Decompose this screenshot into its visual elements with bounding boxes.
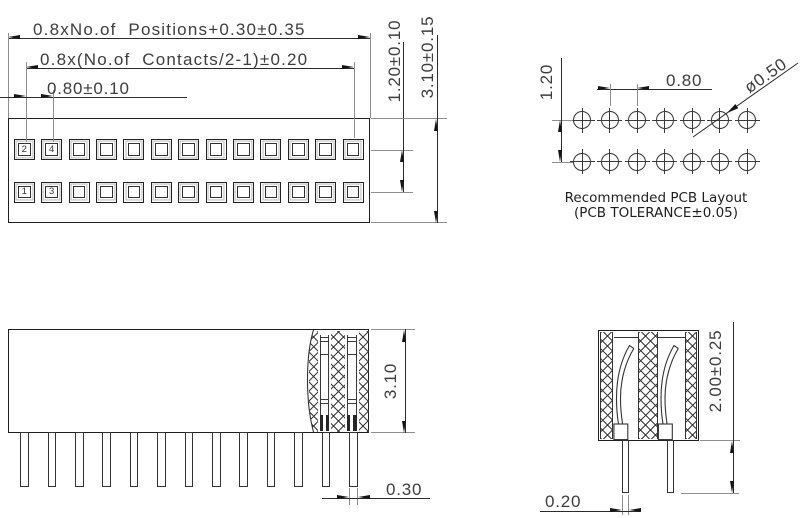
arrowhead <box>598 86 610 90</box>
arrowhead <box>730 481 734 493</box>
pcb-row-spacing-label: 1.20 <box>539 59 555 105</box>
pin <box>130 432 139 487</box>
pin <box>349 432 358 487</box>
pin <box>267 432 276 487</box>
contact-hole <box>69 139 90 160</box>
contact-hole-opening <box>347 143 360 156</box>
contact-foot <box>353 415 357 431</box>
ext-line <box>371 150 413 151</box>
arrowhead <box>337 495 349 499</box>
contact-hole: 1 <box>14 182 35 203</box>
contact-hole <box>260 182 281 203</box>
arrowhead <box>434 119 438 131</box>
contact-hole-opening <box>155 143 168 156</box>
crosshair-v-line <box>609 149 610 174</box>
contact-hole: 2 <box>14 139 35 160</box>
pcb-caption-line1: Recommended PCB Layout <box>530 190 782 206</box>
arrowhead <box>400 180 404 192</box>
pin <box>667 440 674 493</box>
ext-line <box>622 495 623 515</box>
dim-body-height-label: 3.10±0.15 <box>420 5 436 109</box>
pcb-hole <box>683 111 701 129</box>
contact-hole-opening <box>73 143 86 156</box>
contact-channel <box>318 331 332 432</box>
contact-hole <box>69 182 90 203</box>
contact-hole <box>233 182 254 203</box>
dim-row-spacing-label: 1.20±0.10 <box>387 11 403 111</box>
ext-line <box>8 33 9 118</box>
contact-hole <box>233 139 254 160</box>
ext-line <box>371 192 413 193</box>
contact-hole-opening <box>100 143 113 156</box>
arrowhead <box>558 150 562 162</box>
pcb-hole <box>601 111 619 129</box>
pcb-hole <box>738 153 756 171</box>
dim-line <box>405 329 406 433</box>
contact-hole-opening <box>292 186 305 199</box>
contact-detail-line <box>347 399 357 400</box>
contact-hole-opening <box>128 186 141 199</box>
ext-line <box>637 84 638 106</box>
contact-foot <box>347 415 351 431</box>
contact-detail-line <box>347 341 357 342</box>
pin <box>157 432 166 487</box>
pin <box>75 432 84 487</box>
contact-hole-opening <box>73 186 86 199</box>
arrowhead <box>730 441 734 453</box>
pcb-hole <box>656 111 674 129</box>
contact-hole <box>315 139 336 160</box>
ext-line <box>371 432 415 433</box>
pin <box>185 432 194 487</box>
contact-hole-opening <box>182 143 195 156</box>
crosshair-v-line <box>637 108 638 133</box>
cavity-top-line <box>658 337 685 338</box>
contact-detail-line <box>347 403 357 404</box>
contact-foot <box>326 415 330 431</box>
drawing-canvas: 2413 0.8xNo.of Positions+0.30±0.35 0.8x(… <box>0 0 800 518</box>
pcb-hole <box>738 111 756 129</box>
contact-hole-opening: 4 <box>45 143 58 156</box>
crosshair-v-line <box>719 108 720 133</box>
contact-hole <box>123 182 144 203</box>
pcb-hole <box>683 153 701 171</box>
crosshair-v-line <box>692 149 693 174</box>
pcb-hole <box>711 153 729 171</box>
section-pin-thickness-label: 0.20 <box>545 492 581 512</box>
arrowhead <box>610 508 622 512</box>
dim-contacts-span-label: 0.8x(No.of Contacts/2-1)±0.20 <box>40 50 308 70</box>
side-pin-width-label: 0.30 <box>386 480 422 500</box>
contact-detail-line <box>320 403 330 404</box>
dim-line <box>561 58 562 162</box>
contact-hole-opening <box>347 186 360 199</box>
section-wall-center <box>638 332 658 439</box>
contact-hole-opening <box>265 186 278 199</box>
contact-hole-opening <box>265 143 278 156</box>
arrowhead <box>358 35 370 39</box>
arrowhead <box>8 35 20 39</box>
top-view-body <box>8 118 370 223</box>
contact-hole-opening: 2 <box>18 143 31 156</box>
ext-line <box>26 62 27 142</box>
contact-hole-opening <box>182 186 195 199</box>
contact-detail-line <box>320 337 330 338</box>
pcb-hole <box>601 153 619 171</box>
pin <box>48 432 57 487</box>
contact-hole <box>178 182 199 203</box>
ext-line <box>552 120 573 121</box>
contact-detail-line <box>347 337 357 338</box>
crosshair-v-line <box>609 108 610 133</box>
contact-hole-opening <box>100 186 113 199</box>
dim-overall-width-label: 0.8xNo.of Positions+0.30±0.35 <box>33 20 306 40</box>
ext-line <box>370 33 371 118</box>
ext-line <box>371 329 415 330</box>
arrowhead <box>637 86 649 90</box>
contact-hole <box>96 139 117 160</box>
contact-hole <box>206 139 227 160</box>
ext-line <box>349 488 350 505</box>
leader-arrowhead <box>727 104 738 113</box>
contact-hole-opening <box>128 143 141 156</box>
contact-hole <box>178 139 199 160</box>
crosshair-v-line <box>664 149 665 174</box>
arrowhead <box>342 65 354 69</box>
ext-line <box>354 62 355 138</box>
crosshair-v-line <box>582 108 583 133</box>
pcb-hole <box>573 153 591 171</box>
dim-line <box>733 322 734 493</box>
crosshair-v-line <box>692 108 693 133</box>
contact-hole-opening: 1 <box>18 186 31 199</box>
crosshair-v-line <box>664 108 665 133</box>
contact-hole-opening <box>237 186 250 199</box>
contact-hole-opening <box>210 186 223 199</box>
pin <box>294 432 303 487</box>
contact-hole-opening: 3 <box>45 186 58 199</box>
ext-line <box>610 84 611 106</box>
pin <box>239 432 248 487</box>
pcb-hole <box>628 153 646 171</box>
side-height-label: 3.10 <box>383 359 399 403</box>
pin <box>622 440 629 493</box>
contact-hole-opening <box>210 143 223 156</box>
pcb-caption-line2: (PCB TOLERANCE±0.05) <box>530 205 782 221</box>
arrowhead <box>26 65 38 69</box>
contact-foot <box>320 415 324 431</box>
pin <box>212 432 221 487</box>
pin <box>322 432 331 487</box>
arrowhead <box>402 330 406 342</box>
arrowhead <box>400 150 404 162</box>
contact-hole <box>315 182 336 203</box>
contact-hole <box>288 139 309 160</box>
section-wall-right <box>685 332 697 439</box>
contact-hole <box>151 139 172 160</box>
arrowhead <box>434 211 438 223</box>
contact-hole <box>151 182 172 203</box>
contact-hole-opening <box>237 143 250 156</box>
arrowhead <box>558 120 562 132</box>
contact-detail-line <box>320 354 330 355</box>
contact-hole <box>206 182 227 203</box>
contact-hole <box>123 139 144 160</box>
contact-hole <box>343 139 364 160</box>
ext-line <box>552 162 573 163</box>
section-wall-left <box>600 332 614 439</box>
contact-hole <box>288 182 309 203</box>
contact-detail-line <box>320 399 330 400</box>
contact-hole: 4 <box>41 139 62 160</box>
ext-line <box>628 495 629 515</box>
crosshair-v-line <box>719 149 720 174</box>
pcb-hole-dia-label: ø0.50 <box>737 52 795 100</box>
contact-detail-line <box>320 341 330 342</box>
contact-hole <box>260 139 281 160</box>
contact-channel <box>345 331 359 432</box>
cavity-top-line <box>614 337 639 338</box>
crosshair-v-line <box>637 149 638 174</box>
pcb-hole <box>656 153 674 171</box>
pcb-hole <box>711 111 729 129</box>
contact-hole-opening <box>155 186 168 199</box>
arrowhead <box>14 94 26 98</box>
pin <box>20 432 29 487</box>
pcb-hole <box>573 111 591 129</box>
crosshair-v-line <box>747 149 748 174</box>
contact-hole-opening <box>319 186 332 199</box>
arrowhead <box>358 495 370 499</box>
pcb-pitch-label: 0.80 <box>666 71 702 91</box>
contact-hole: 3 <box>41 182 62 203</box>
pin <box>102 432 111 487</box>
arrowhead <box>402 421 406 433</box>
section-tail-length-label: 2.00±0.25 <box>708 321 724 421</box>
contact-hole-opening <box>292 143 305 156</box>
crosshair-v-line <box>747 108 748 133</box>
contact-detail-line <box>347 354 357 355</box>
crosshair-v-line <box>582 149 583 174</box>
contact-hole <box>343 182 364 203</box>
pcb-hole <box>628 111 646 129</box>
arrowhead <box>629 508 641 512</box>
dim-pitch-label: 0.80±0.10 <box>47 79 130 99</box>
contact-hole <box>96 182 117 203</box>
contact-hole-opening <box>319 143 332 156</box>
